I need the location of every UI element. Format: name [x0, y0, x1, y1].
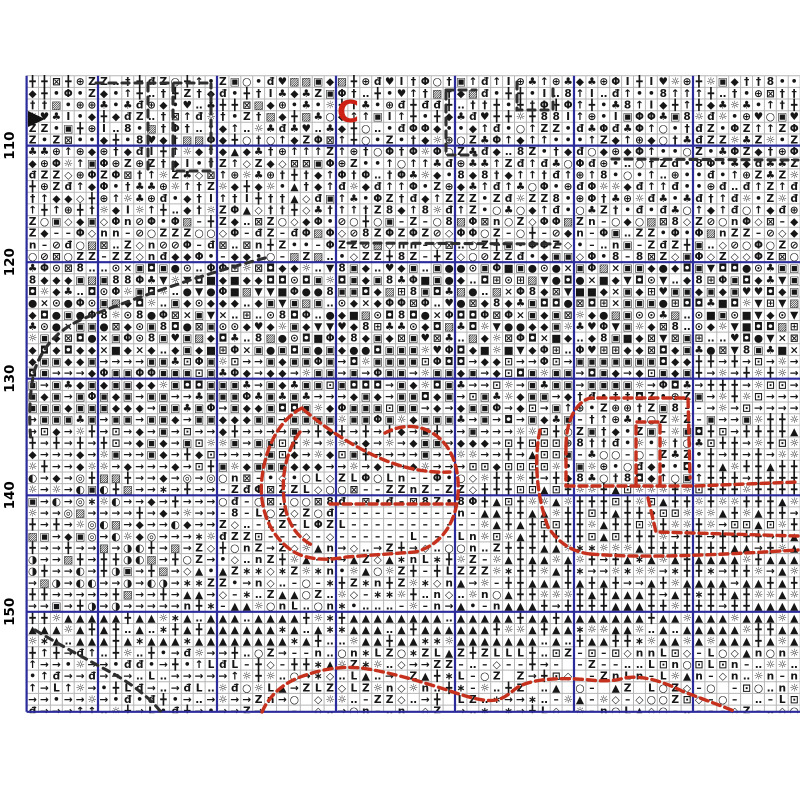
stitch-cell: ◘: [290, 344, 299, 356]
stitch-cell: ◆: [397, 204, 406, 216]
stitch-cell: ⊠: [123, 170, 132, 182]
stitch-cell: •: [696, 170, 703, 182]
stitch-cell: ‥: [243, 554, 250, 566]
stitch-cell: ▲: [624, 624, 633, 636]
stitch-cell: ╋: [623, 507, 631, 520]
stitch-cell: Z: [267, 228, 275, 240]
stitch-cell: ◆: [433, 123, 442, 135]
stitch-cell: ◇: [635, 694, 644, 706]
stitch-cell: →: [88, 542, 97, 554]
stitch-cell: ○: [492, 589, 501, 601]
stitch-cell: ↑: [409, 158, 418, 170]
stitch-cell: ○: [516, 123, 525, 135]
stitch-cell: ⊡: [587, 508, 596, 520]
stitch-cell: ◐: [99, 519, 108, 531]
stitch-cell: →: [480, 379, 489, 391]
stitch-cell: →: [338, 391, 347, 403]
stitch-cell: ▣: [301, 356, 311, 368]
stitch-cell: →: [111, 461, 120, 473]
stitch-cell: •: [148, 659, 155, 671]
stitch-cell: ○: [242, 682, 251, 694]
stitch-cell: ○: [242, 76, 251, 88]
stitch-cell: →: [492, 426, 501, 438]
stitch-cell: †: [256, 88, 261, 100]
stitch-cell: ‥: [719, 88, 726, 100]
stitch-cell: ◘: [195, 379, 204, 391]
stitch-cell: ○: [218, 496, 227, 508]
stitch-cell: ☼: [789, 589, 799, 601]
stitch-cell: •: [77, 111, 84, 123]
stitch-cell: ▣: [63, 123, 73, 135]
stitch-cell: •: [529, 88, 536, 100]
stitch-cell: ╋: [290, 203, 298, 216]
stitch-cell: →: [540, 659, 549, 671]
stitch-cell: 8: [529, 286, 536, 298]
stitch-cell: →: [599, 566, 608, 578]
stitch-cell: ●: [504, 321, 513, 333]
stitch-cell: –: [589, 228, 594, 240]
stitch-cell: ☼: [242, 671, 252, 683]
stitch-cell: ⊡: [468, 461, 477, 473]
stitch-cell: ‥: [660, 170, 667, 182]
stitch-cell: ▲: [100, 636, 109, 648]
stitch-cell: Φ: [730, 123, 739, 135]
stitch-cell: n: [731, 659, 739, 671]
stitch-cell: ╋: [707, 425, 715, 438]
stitch-cell: →: [195, 519, 204, 531]
stitch-cell: ●: [456, 298, 465, 310]
stitch-cell: đ: [695, 193, 703, 205]
stitch-cell: ╋: [88, 623, 96, 636]
stitch-cell: →: [135, 414, 144, 426]
stitch-cell: ◆: [647, 473, 656, 485]
stitch-cell: †: [161, 88, 166, 100]
stitch-cell: ☼: [611, 181, 621, 193]
stitch-cell: ⊡: [778, 438, 787, 450]
stitch-cell: ◆: [136, 426, 145, 438]
stitch-cell: →: [207, 589, 216, 601]
stitch-cell: ○: [433, 216, 442, 228]
stitch-cell: 8: [386, 204, 393, 216]
stitch-cell: ▣: [634, 298, 644, 310]
stitch-cell: ○: [361, 123, 370, 135]
stitch-cell: n: [255, 239, 263, 251]
stitch-cell: ♣: [135, 181, 145, 193]
stitch-cell: n: [386, 682, 394, 694]
stitch-cell: ▣: [551, 403, 561, 415]
stitch-cell: †: [613, 473, 618, 485]
stitch-cell: đ: [707, 111, 715, 123]
stitch-cell: Z: [255, 542, 263, 554]
stitch-cell: 8: [326, 286, 333, 298]
stitch-cell: ●: [659, 263, 668, 275]
stitch-cell: ▨: [170, 542, 180, 554]
stitch-cell: ○: [766, 647, 775, 659]
stitch-cell: Φ: [492, 263, 501, 275]
stitch-cell: ♣: [659, 309, 669, 321]
stitch-cell: ▣: [623, 321, 633, 333]
stitch-cell: ↑: [88, 647, 97, 659]
stitch-cell: ◆: [624, 344, 633, 356]
stitch-cell: L: [517, 647, 524, 659]
stitch-cell: ▲: [588, 636, 597, 648]
stitch-cell: ╋: [207, 215, 215, 228]
stitch-cell: đ: [65, 239, 73, 251]
stitch-cell: ‥: [124, 624, 131, 636]
stitch-cell: ☼: [706, 76, 716, 88]
stitch-cell: →: [28, 577, 37, 589]
stitch-cell: ⊞: [492, 274, 501, 286]
stitch-cell: ▣: [408, 403, 418, 415]
stitch-cell: n: [481, 589, 489, 601]
stitch-cell: ◆: [159, 449, 168, 461]
stitch-cell: ╋: [528, 472, 536, 485]
stitch-cell: ∗: [433, 636, 442, 648]
stitch-cell: ▲: [778, 496, 787, 508]
stitch-cell: Φ: [575, 158, 584, 170]
stitch-cell: ◇: [528, 216, 537, 228]
stitch-cell: ◇: [338, 228, 347, 240]
stitch-cell: ◆: [302, 461, 311, 473]
stitch-cell: n: [790, 671, 798, 683]
stitch-cell: ∗: [695, 589, 704, 601]
stitch-cell: Z: [219, 519, 227, 531]
stitch-cell: ☼: [635, 624, 645, 636]
stitch-cell: ○: [575, 682, 584, 694]
stitch-cell: ◘: [433, 379, 442, 391]
stitch-cell: ◆: [76, 461, 85, 473]
stitch-cell: ▲: [743, 636, 752, 648]
stitch-cell: ☼: [742, 193, 752, 205]
stitch-cell: ×: [100, 333, 109, 345]
stitch-cell: ♣: [587, 123, 597, 135]
stitch-cell: –: [506, 659, 511, 671]
stitch-cell: ⊡: [611, 647, 620, 659]
stitch-cell: ‥: [362, 88, 369, 100]
stitch-cell: •: [696, 449, 703, 461]
stitch-cell: ⊕: [742, 170, 751, 182]
stitch-cell: ▣: [51, 379, 61, 391]
stitch-cell: ⊕: [611, 414, 620, 426]
stitch-cell: ▣: [646, 298, 656, 310]
stitch-cell: ☼: [385, 438, 395, 450]
stitch-cell: ⊙: [52, 298, 61, 310]
stitch-cell: ◆: [231, 414, 240, 426]
stitch-cell: ▲: [457, 624, 466, 636]
stitch-cell: Φ: [171, 216, 180, 228]
stitch-cell: Φ: [64, 88, 73, 100]
stitch-cell: –: [756, 228, 761, 240]
stitch-cell: –: [625, 694, 630, 706]
stitch-cell: ‥: [707, 239, 714, 251]
stitch-cell: ‥: [541, 647, 548, 659]
stitch-cell: ◘: [659, 356, 668, 368]
stitch-cell: I: [649, 100, 653, 112]
stitch-cell: ▲: [778, 589, 787, 601]
stitch-cell: ╋: [516, 588, 524, 601]
stitch-cell: Φ: [599, 321, 608, 333]
stitch-cell: →: [159, 519, 168, 531]
stitch-cell: ▣: [789, 263, 799, 275]
stitch-cell: ╋: [683, 565, 691, 578]
stitch-cell: ◆: [76, 216, 85, 228]
stitch-cell: ⊞: [599, 344, 608, 356]
stitch-cell: ↑: [64, 682, 73, 694]
stitch-cell: →: [504, 403, 513, 415]
stitch-cell: ◘: [445, 356, 454, 368]
stitch-cell: ☼: [183, 508, 193, 520]
stitch-cell: ◆: [374, 286, 383, 298]
stitch-cell: ⊙: [135, 333, 144, 345]
stitch-cell: ◆: [421, 321, 430, 333]
stitch-cell: ☼: [670, 414, 680, 426]
stitch-cell: ☼: [99, 204, 109, 216]
stitch-cell: ╋: [100, 553, 108, 566]
stitch-cell: ▣: [75, 274, 85, 286]
stitch-cell: đ: [267, 76, 275, 88]
stitch-cell: ‥: [386, 624, 393, 636]
stitch-cell: ◇: [267, 659, 276, 671]
stitch-cell: đ: [779, 204, 787, 216]
stitch-cell: ╋: [790, 460, 798, 473]
stitch-cell: Z: [529, 193, 537, 205]
stitch-cell: ▲: [528, 624, 537, 636]
stitch-cell: ╋: [707, 495, 715, 508]
stitch-cell: ▣: [111, 414, 121, 426]
stitch-cell: ↑: [718, 204, 727, 216]
stitch-cell: Φ: [540, 181, 549, 193]
stitch-cell: Φ: [195, 356, 204, 368]
stitch-cell: ◘: [40, 309, 49, 321]
stitch-cell: ▨: [87, 274, 97, 286]
stitch-cell: ◆: [136, 531, 145, 543]
stitch-cell: ⊠: [433, 333, 442, 345]
stitch-cell: Φ: [111, 170, 120, 182]
stitch-cell: L: [493, 647, 500, 659]
stitch-cell: I: [185, 158, 189, 170]
stitch-cell: ↑: [778, 181, 787, 193]
stitch-cell: ▣: [349, 414, 359, 426]
stitch-cell: ○: [290, 496, 299, 508]
stitch-cell: ▲: [433, 624, 442, 636]
stitch-cell: ╋: [504, 541, 512, 554]
stitch-cell: ▣: [611, 228, 621, 240]
stitch-cell: ×: [123, 263, 132, 275]
stitch-cell: ○: [492, 204, 501, 216]
stitch-cell: ↑: [64, 146, 73, 158]
stitch-cell: ╋: [171, 623, 179, 636]
stitch-cell: →: [290, 682, 299, 694]
stitch-cell: ◎: [76, 496, 85, 508]
stitch-cell: →: [242, 449, 251, 461]
stitch-cell: ♥: [754, 111, 764, 123]
stitch-cell: Φ: [409, 123, 418, 135]
stitch-cell: Φ: [611, 76, 620, 88]
stitch-cell: Z: [493, 542, 501, 554]
stitch-cell: ▲: [350, 624, 359, 636]
stitch-cell: ♣: [194, 391, 204, 403]
stitch-cell: ◆: [790, 216, 799, 228]
stitch-cell: ╋: [147, 541, 155, 554]
stitch-cell: ‥: [350, 694, 357, 706]
stitch-cell: ╋: [28, 518, 36, 531]
stitch-cell: ▣: [111, 449, 121, 461]
stitch-cell: đ: [719, 181, 727, 193]
stitch-cell: ⊘: [349, 228, 358, 240]
stitch-cell: ♣: [456, 414, 466, 426]
stitch-cell: ╋: [28, 437, 36, 450]
stitch-cell: ○: [337, 647, 346, 659]
stitch-cell: ●: [468, 286, 477, 298]
stitch-cell: Z: [398, 566, 406, 578]
stitch-cell: ◆: [29, 88, 38, 100]
stitch-cell: ▲: [469, 612, 478, 624]
stitch-cell: đ: [184, 647, 192, 659]
stitch-cell: –: [637, 239, 642, 251]
stitch-cell: đ: [398, 100, 406, 112]
stitch-cell: †: [137, 170, 142, 182]
stitch-cell: ☼: [718, 391, 728, 403]
stitch-cell: †: [708, 193, 713, 205]
stitch-cell: ╋: [719, 588, 727, 601]
stitch-cell: →: [421, 694, 430, 706]
stitch-cell: →: [64, 671, 73, 683]
stitch-cell: ⊙: [695, 321, 704, 333]
stitch-cell: ◘: [266, 263, 275, 275]
stitch-cell: 8: [576, 438, 583, 450]
stitch-cell: ☼: [432, 204, 442, 216]
stitch-cell: –: [732, 694, 737, 706]
stitch-cell: •: [362, 193, 369, 205]
stitch-cell: ☼: [480, 321, 490, 333]
stitch-cell: ╋: [790, 576, 798, 589]
stitch-cell: ⊡: [552, 449, 561, 461]
stitch-cell: ▼: [778, 274, 787, 286]
stitch-cell: ⊡: [635, 519, 644, 531]
stitch-cell: ☼: [123, 193, 133, 205]
stitch-cell: đ: [671, 181, 679, 193]
stitch-cell: ╋: [171, 553, 179, 566]
stitch-cell: ☼: [670, 426, 680, 438]
stitch-cell: ☼: [28, 461, 38, 473]
stitch-cell: ╋: [528, 658, 536, 671]
stitch-cell: ╋: [754, 448, 762, 461]
stitch-cell: ●: [421, 309, 430, 321]
stitch-cell: ▲: [540, 612, 549, 624]
stitch-cell: ⊡: [528, 403, 537, 415]
stitch-cell: ▲: [564, 624, 573, 636]
stitch-cell: Z: [302, 508, 310, 520]
stitch-cell: ⊞: [552, 344, 561, 356]
stitch-cell: ╋: [635, 530, 643, 543]
stitch-cell: →: [40, 554, 49, 566]
stitch-cell: ‥: [243, 647, 250, 659]
stitch-cell: ‥: [172, 286, 179, 298]
stitch-cell: đ: [326, 508, 334, 520]
stitch-cell: →: [504, 426, 513, 438]
stitch-cell: ☼: [421, 170, 431, 182]
stitch-cell: ‥: [457, 333, 464, 345]
stitch-cell: Z: [279, 519, 287, 531]
stitch-cell: Φ: [433, 356, 442, 368]
stitch-cell: ☼: [171, 181, 181, 193]
stitch-cell: Φ: [147, 216, 156, 228]
stitch-cell: ▨: [670, 309, 680, 321]
stitch-cell: 8: [553, 193, 560, 205]
stitch-cell: †: [42, 100, 47, 112]
stitch-cell: →: [135, 461, 144, 473]
stitch-cell: ╋: [576, 507, 584, 520]
stitch-cell: ▲: [100, 624, 109, 636]
stitch-cell: đ: [481, 146, 489, 158]
stitch-cell: ╋: [516, 565, 524, 578]
stitch-cell: →: [385, 391, 394, 403]
stitch-cell: 8: [695, 274, 702, 286]
stitch-cell: L: [458, 671, 465, 683]
stitch-cell: →: [790, 356, 799, 368]
stitch-cell: ◇: [207, 542, 216, 554]
stitch-cell: ◆: [719, 286, 728, 298]
stitch-cell: ◆: [243, 414, 252, 426]
stitch-cell: ▣: [420, 449, 430, 461]
stitch-cell: →: [123, 356, 132, 368]
stitch-cell: ☼: [647, 636, 657, 648]
stitch-cell: ↑: [230, 158, 239, 170]
stitch-cell: ▣: [385, 344, 395, 356]
stitch-cell: ╋: [433, 565, 441, 578]
stitch-cell: ╋: [719, 437, 727, 450]
stitch-cell: •: [660, 228, 667, 240]
stitch-cell: ▲: [433, 612, 442, 624]
stitch-cell: ⊡: [421, 356, 430, 368]
stitch-cell: ▲: [588, 612, 597, 624]
stitch-cell: ◘: [718, 263, 727, 275]
stitch-cell: 8: [148, 333, 155, 345]
stitch-cell: –: [744, 659, 749, 671]
stitch-cell: –: [244, 496, 249, 508]
stitch-cell: →: [52, 461, 61, 473]
stitch-cell: Z: [778, 123, 786, 135]
stitch-cell: n: [124, 216, 132, 228]
stitch-cell: ▣: [646, 356, 656, 368]
stitch-cell: ▣: [28, 496, 38, 508]
stitch-cell: L: [208, 659, 215, 671]
stitch-cell: ▨: [99, 542, 109, 554]
stitch-cell: ▣: [373, 403, 383, 415]
stitch-cell: ⊠: [576, 298, 585, 310]
stitch-cell: ⊠: [445, 239, 454, 251]
stitch-cell: →: [183, 496, 192, 508]
stitch-cell: •: [553, 181, 560, 193]
stitch-cell: †: [30, 193, 35, 205]
stitch-cell: ☼: [516, 426, 526, 438]
stitch-cell: I: [102, 123, 106, 135]
stitch-cell: Z: [493, 193, 501, 205]
stitch-cell: 8: [422, 204, 429, 216]
stitch-cell: ∗: [314, 659, 323, 671]
stitch-cell: •: [113, 181, 120, 193]
stitch-cell: →: [742, 449, 751, 461]
stitch-cell: ☼: [635, 566, 645, 578]
stitch-cell: ●: [444, 274, 453, 286]
stitch-cell: Z: [767, 193, 775, 205]
stitch-cell: ‥: [112, 239, 119, 251]
stitch-cell: ╋: [731, 507, 739, 520]
stitch-cell: ╋: [40, 588, 48, 601]
stitch-cell: ◆: [124, 321, 133, 333]
stitch-cell: 8: [231, 508, 238, 520]
stitch-cell: ▣: [87, 356, 97, 368]
